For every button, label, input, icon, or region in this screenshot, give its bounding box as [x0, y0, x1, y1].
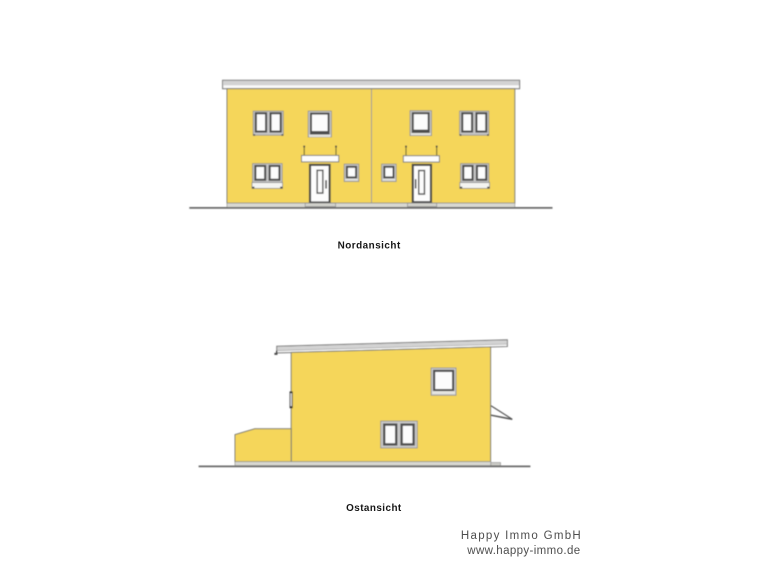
svg-text:Nordansicht: Nordansicht — [338, 241, 401, 252]
svg-text:Ostansicht: Ostansicht — [346, 503, 402, 514]
svg-text:Happy Immo GmbH: Happy Immo GmbH — [461, 530, 582, 542]
svg-text:www.happy-immo.de: www.happy-immo.de — [466, 545, 580, 557]
